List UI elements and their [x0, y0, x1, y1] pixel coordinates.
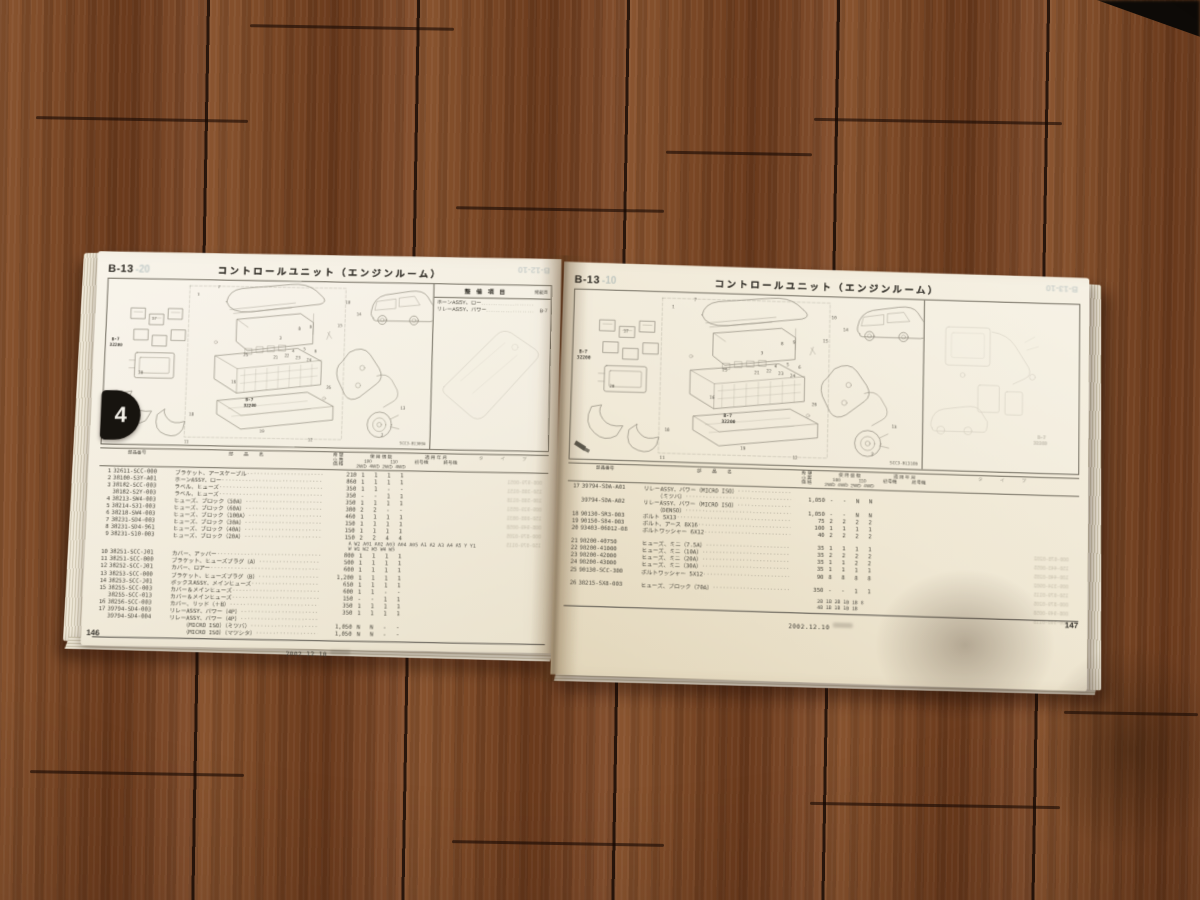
callout-numbers: 1234567891011121314151617181920212223242…: [607, 294, 899, 468]
callout-number: 4: [774, 364, 777, 370]
left-page: B-13 -20 コントロールユニット（エンジンルーム） B-12-10 123…: [81, 251, 562, 653]
col-applicable: 適 用 年 月 初号機終号機: [407, 455, 465, 471]
callout-number: 19: [740, 446, 746, 452]
col-type: タ イ プ: [933, 476, 1079, 495]
table-body: 000-678-0202150-443-0055100-440-0285009-…: [564, 481, 1079, 621]
print-date: 2002.12.10: [286, 651, 328, 659]
callout-number: 11: [660, 455, 666, 461]
callout-number: 25: [722, 367, 728, 373]
callout-number: 17: [152, 316, 158, 321]
callout-number: 3: [279, 335, 282, 340]
callout-number: 2: [871, 452, 874, 458]
showthrough-tab-code: B-13-10: [1046, 283, 1078, 294]
callout-number: 24: [307, 357, 313, 362]
exploded-diagram: 1234567891011121314151617181920212223242…: [101, 279, 433, 449]
callout-number: 10: [346, 300, 351, 305]
callout-number: 1: [672, 304, 675, 310]
callout-number: 20: [138, 370, 144, 375]
diagram-box: 1234567891011121314151617181920212223242…: [100, 278, 552, 453]
ref-number: 32200: [1034, 441, 1048, 447]
ref-number: 32200: [577, 355, 591, 361]
ref-label: B-7: [579, 349, 588, 355]
ref-number: 32200: [721, 419, 735, 425]
callout-number: 15: [823, 339, 829, 345]
callout-number: 24: [790, 373, 796, 379]
callout-number: 21: [754, 370, 760, 376]
callout-number: 7: [694, 297, 697, 303]
table-body: 008-979-0051150-308-0151100-508-0118009-…: [92, 466, 548, 644]
service-items-panel: 整 備 項 目 掲載頁 ホーンASSY、ロー..................…: [429, 284, 551, 451]
parts-table-right: 部品番号 部 品 名 希 望小 売価 格 使 用 個 数 100110 2WD4…: [564, 462, 1080, 622]
callout-number: 16: [709, 395, 715, 401]
callout-number: 7: [218, 284, 221, 289]
callout-number: 18: [664, 427, 670, 433]
col-part-name: 部 品 名: [173, 451, 321, 468]
service-panel-title: 整 備 項 目: [437, 286, 535, 296]
callout-number: 22: [766, 369, 772, 375]
ref-label: B-7: [245, 397, 253, 403]
callout-number: 5: [786, 362, 789, 368]
page-number: 146: [86, 628, 100, 637]
showthrough-tab-code: B-12-10: [518, 265, 550, 276]
callout-number: 23: [295, 355, 301, 360]
callout-number: 21: [273, 355, 279, 360]
diagram-box: 1234567891011121314151617181920212223242…: [569, 288, 1081, 475]
col-price: 希 望小 売価 格: [321, 453, 355, 468]
callout-number: 9: [309, 324, 312, 329]
showthrough-text: 008-979-0051150-308-0151100-508-0118009-…: [449, 478, 543, 551]
diagram-code: SCC3-B1310B: [890, 460, 918, 466]
callout-number: 12: [792, 455, 798, 461]
callout-number: 26: [326, 385, 332, 390]
callout-number: 15: [337, 323, 342, 328]
col-qty: 使 用 個 数 100110 2WD4WD2WD4WD: [355, 454, 407, 470]
callout-number: 5: [303, 346, 306, 351]
right-page: B-13 -10 コントロールユニット（エンジンルーム） B-13-10 123…: [550, 262, 1089, 691]
parts-catalog-book: B-13 -20 コントロールユニット（エンジンルーム） B-12-10 123…: [55, 243, 1132, 703]
col-part-number: 部品番号: [100, 449, 174, 465]
exploded-diagram: 1234567891011121314151617181920212223242…: [570, 289, 924, 469]
callout-number: 20: [609, 384, 615, 390]
callout-number: 16: [231, 379, 237, 384]
service-panel-ref-header: 掲載頁: [535, 289, 548, 295]
col-qty: 使 用 個 数 100110 2WD4WD2WD4WD: [823, 472, 875, 489]
diagram-code: SCC3-B1300A: [400, 441, 427, 447]
callout-number: 3: [761, 350, 764, 356]
callout-number: 6: [314, 349, 317, 354]
callout-number: 1: [197, 291, 200, 296]
faint-continuation-diagram: B-7 32200: [923, 300, 1080, 474]
callout-number: 12: [308, 437, 314, 442]
print-date: 2002.12.10: [788, 623, 830, 631]
showthrough-text: 000-678-0202150-443-0055100-440-0285009-…: [917, 552, 1068, 629]
service-panel-sketch: [432, 315, 548, 439]
callout-number: 11: [184, 439, 190, 444]
page-number: 147: [1065, 621, 1079, 630]
callout-number: 14: [356, 312, 361, 317]
callout-number: 23: [778, 371, 784, 377]
callout-number: 8: [781, 341, 784, 347]
callout-number: 25: [243, 352, 249, 357]
continuation-panel: B-7 32200: [922, 300, 1080, 474]
col-applicable: 適 用 年 月 初号機終号機: [875, 474, 933, 491]
callout-number: 14: [843, 327, 849, 333]
callout-number: 10: [831, 315, 837, 321]
service-panel-rows: ホーンASSY、ロー..............................…: [434, 298, 551, 318]
callout-number: 18: [189, 411, 195, 416]
ref-label: B-7: [723, 413, 732, 419]
callout-number: 13: [400, 405, 405, 410]
callout-number: 17: [623, 328, 629, 334]
service-item-row: リレーASSY、パワー.............................…: [437, 307, 548, 316]
callout-number: 19: [259, 428, 265, 433]
parts-table-left: 部品番号 部 品 名 希 望小 売価 格 使 用 個 数 100110 2WD4…: [92, 447, 549, 645]
col-part-number: 部品番号: [568, 464, 642, 481]
ref-number: 32200: [109, 342, 122, 348]
ref-number: 32200: [243, 403, 256, 409]
col-type: タ イ プ: [465, 456, 549, 472]
col-price: 希 望小 売価 格: [789, 471, 823, 487]
ref-label: B-7: [1038, 435, 1046, 441]
callout-number: 6: [798, 365, 801, 371]
callout-number: 8: [298, 326, 301, 331]
print-code-smudge: [330, 650, 350, 655]
callout-number: 22: [284, 353, 290, 358]
print-code-smudge: [833, 623, 853, 629]
callout-number: 26: [812, 402, 818, 408]
callout-number: 13: [891, 424, 897, 430]
ref-label: B-7: [112, 336, 120, 342]
